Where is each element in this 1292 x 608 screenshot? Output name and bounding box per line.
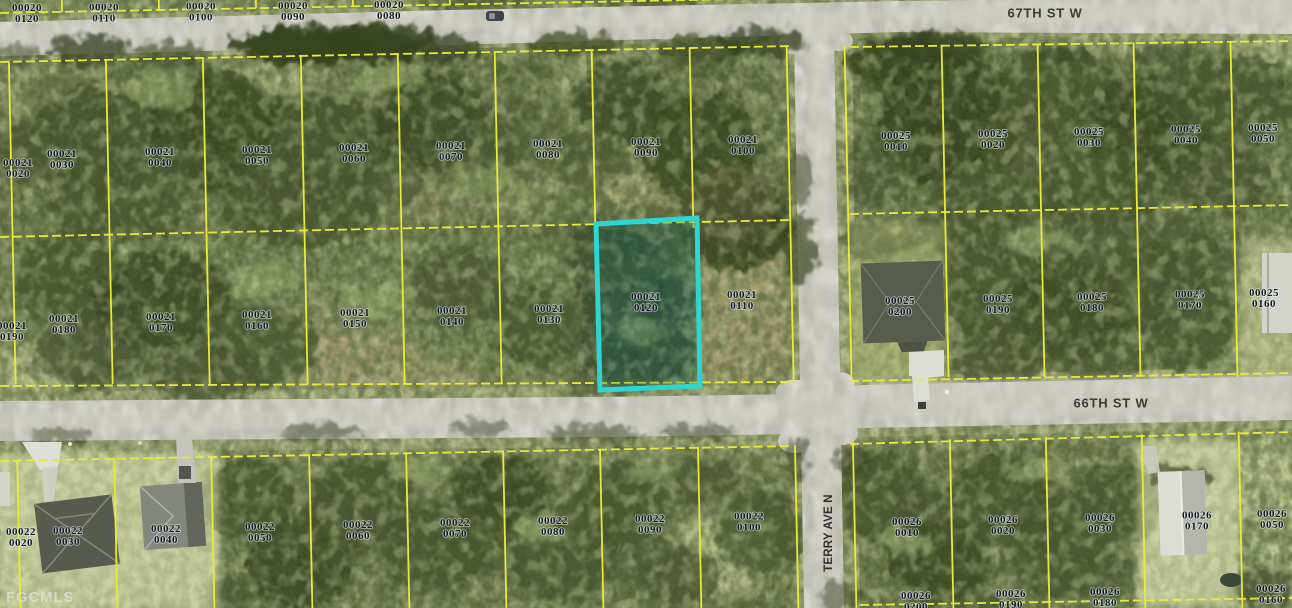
svg-text:000220100: 000220100 xyxy=(734,511,764,534)
svg-text:000210060: 000210060 xyxy=(339,142,369,165)
svg-text:000220060: 000220060 xyxy=(343,519,373,542)
svg-text:000210070: 000210070 xyxy=(436,140,466,163)
svg-text:67TH ST W: 67TH ST W xyxy=(1007,6,1082,21)
svg-text:000250030: 000250030 xyxy=(1074,126,1104,149)
svg-text:000210150: 000210150 xyxy=(340,307,370,330)
svg-text:000220090: 000220090 xyxy=(635,513,665,536)
svg-text:FGCMLS: FGCMLS xyxy=(6,590,74,606)
svg-text:000210050: 000210050 xyxy=(242,144,272,167)
svg-text:000200080: 000200080 xyxy=(374,0,404,22)
svg-text:000210190: 000210190 xyxy=(0,320,27,343)
svg-text:000210140: 000210140 xyxy=(437,305,467,328)
svg-text:000250200: 000250200 xyxy=(885,295,915,318)
svg-text:000260010: 000260010 xyxy=(892,516,922,539)
svg-text:000200120: 000200120 xyxy=(12,2,42,25)
svg-text:000220070: 000220070 xyxy=(440,517,470,540)
svg-text:000250180: 000250180 xyxy=(1077,291,1107,314)
svg-text:000210170: 000210170 xyxy=(146,311,176,334)
svg-text:000210120: 000210120 xyxy=(631,291,661,314)
svg-text:000210030: 000210030 xyxy=(47,148,77,171)
svg-text:000200090: 000200090 xyxy=(278,0,308,23)
svg-text:000210130: 000210130 xyxy=(534,303,564,326)
svg-text:000260020: 000260020 xyxy=(988,514,1018,537)
svg-text:000250170: 000250170 xyxy=(1175,289,1205,312)
svg-text:000260030: 000260030 xyxy=(1085,512,1115,535)
svg-text:000220030: 000220030 xyxy=(53,525,83,548)
svg-text:000200110: 000200110 xyxy=(89,1,119,24)
svg-text:000250040: 000250040 xyxy=(1171,124,1201,147)
svg-text:000210090: 000210090 xyxy=(631,136,661,159)
svg-text:000210100: 000210100 xyxy=(728,134,758,157)
svg-text:000210160: 000210160 xyxy=(242,309,272,332)
svg-text:000250160: 000250160 xyxy=(1249,287,1279,310)
svg-text:000250050: 000250050 xyxy=(1248,122,1278,145)
svg-text:000210080: 000210080 xyxy=(533,138,563,161)
svg-text:000260190: 000260190 xyxy=(996,588,1026,608)
svg-text:000220040: 000220040 xyxy=(151,523,181,546)
svg-text:000210180: 000210180 xyxy=(49,313,79,336)
svg-text:000250020: 000250020 xyxy=(978,128,1008,151)
svg-text:000210110: 000210110 xyxy=(727,289,757,312)
svg-text:000210020: 000210020 xyxy=(3,157,33,180)
svg-text:000250190: 000250190 xyxy=(983,293,1013,316)
svg-text:000260200: 000260200 xyxy=(901,590,931,608)
svg-text:000220080: 000220080 xyxy=(538,515,568,538)
svg-text:000260180: 000260180 xyxy=(1090,586,1120,608)
svg-text:000200100: 000200100 xyxy=(186,1,216,24)
svg-text:TERRY AVE N: TERRY AVE N xyxy=(823,494,835,572)
svg-text:000260170: 000260170 xyxy=(1182,510,1212,533)
svg-text:000260050: 000260050 xyxy=(1257,508,1287,531)
svg-text:000220020: 000220020 xyxy=(6,526,36,549)
svg-text:000220050: 000220050 xyxy=(245,521,275,544)
svg-text:000210040: 000210040 xyxy=(145,146,175,169)
svg-text:000250010: 000250010 xyxy=(881,130,911,153)
svg-text:66TH ST W: 66TH ST W xyxy=(1073,396,1148,411)
svg-text:000260160: 000260160 xyxy=(1256,583,1286,606)
